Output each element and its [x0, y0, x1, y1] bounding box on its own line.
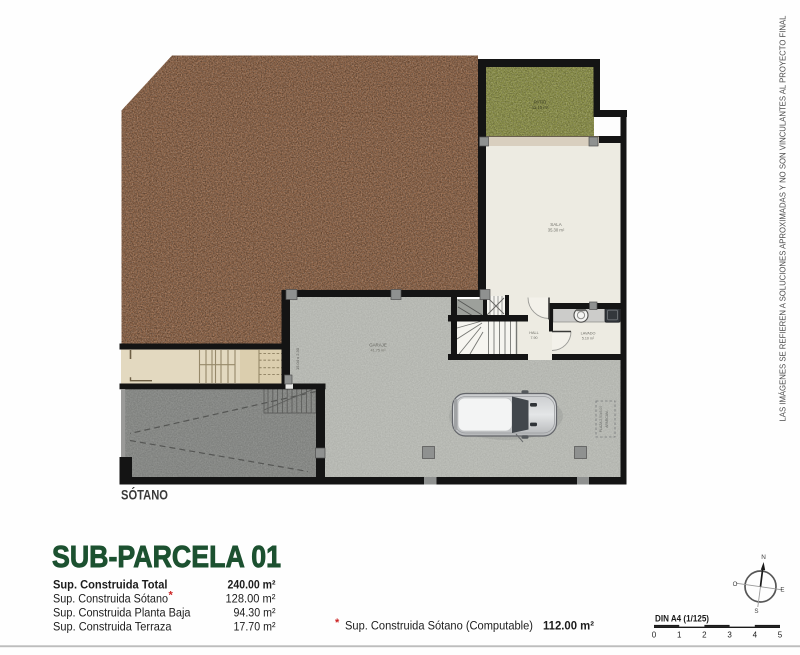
svg-text:128.00 m²: 128.00 m²	[226, 592, 276, 606]
svg-text:1: 1	[677, 631, 682, 640]
svg-text:Sup. Construida Planta Baja: Sup. Construida Planta Baja	[53, 606, 191, 620]
svg-text:SUB-PARCELA 01: SUB-PARCELA 01	[52, 539, 281, 574]
svg-text:7.90: 7.90	[531, 336, 538, 340]
svg-text:N: N	[761, 554, 766, 561]
svg-text:5: 5	[778, 631, 783, 640]
svg-text:O: O	[733, 581, 738, 588]
svg-text:5.10 m²: 5.10 m²	[582, 337, 595, 341]
svg-text:Sup. Construida Terraza: Sup. Construida Terraza	[53, 620, 172, 634]
svg-text:240.00 m²: 240.00 m²	[228, 578, 276, 592]
svg-text:GARAJE: GARAJE	[369, 343, 387, 348]
svg-text:112.00 m²: 112.00 m²	[543, 619, 594, 633]
svg-text:2: 2	[702, 631, 707, 640]
svg-text:LAS IMÁGENES SE REFIEREN A SOL: LAS IMÁGENES SE REFIEREN A SOLUCIONES AP…	[778, 15, 788, 421]
svg-text:PATIO: PATIO	[534, 100, 547, 105]
svg-text:17.70 m²: 17.70 m²	[234, 620, 276, 634]
svg-text:35.30 m²: 35.30 m²	[548, 228, 565, 233]
svg-text:SALA: SALA	[550, 222, 562, 227]
svg-text:Sup. Construida Sótano (Comput: Sup. Construida Sótano (Computable)	[345, 619, 533, 633]
svg-text:4: 4	[753, 631, 758, 640]
svg-text:Sup. Construida Total: Sup. Construida Total	[53, 578, 168, 592]
svg-text:11.10 m²: 11.10 m²	[532, 105, 549, 110]
svg-text:SÓTANO: SÓTANO	[121, 488, 168, 503]
svg-text:15.04 x 2.30: 15.04 x 2.30	[295, 347, 300, 370]
svg-text:0: 0	[652, 631, 657, 640]
svg-text:*: *	[335, 617, 340, 629]
svg-text:94.30 m²: 94.30 m²	[234, 606, 276, 620]
svg-text:PLAZA 2.50x5.00: PLAZA 2.50x5.00	[599, 406, 603, 433]
svg-text:3: 3	[727, 631, 732, 640]
svg-text:LAVADO: LAVADO	[581, 332, 596, 336]
svg-text:E: E	[780, 587, 784, 594]
svg-text:41.75 m²: 41.75 m²	[371, 349, 387, 353]
svg-text:HALL: HALL	[529, 331, 539, 335]
svg-text:*: *	[169, 590, 174, 602]
svg-text:Sup. Construida Sótano: Sup. Construida Sótano	[53, 592, 168, 606]
svg-text:S: S	[754, 608, 758, 615]
svg-text:APARCAM.: APARCAM.	[605, 410, 609, 428]
svg-text:DIN A4 (1/125): DIN A4 (1/125)	[655, 614, 709, 625]
